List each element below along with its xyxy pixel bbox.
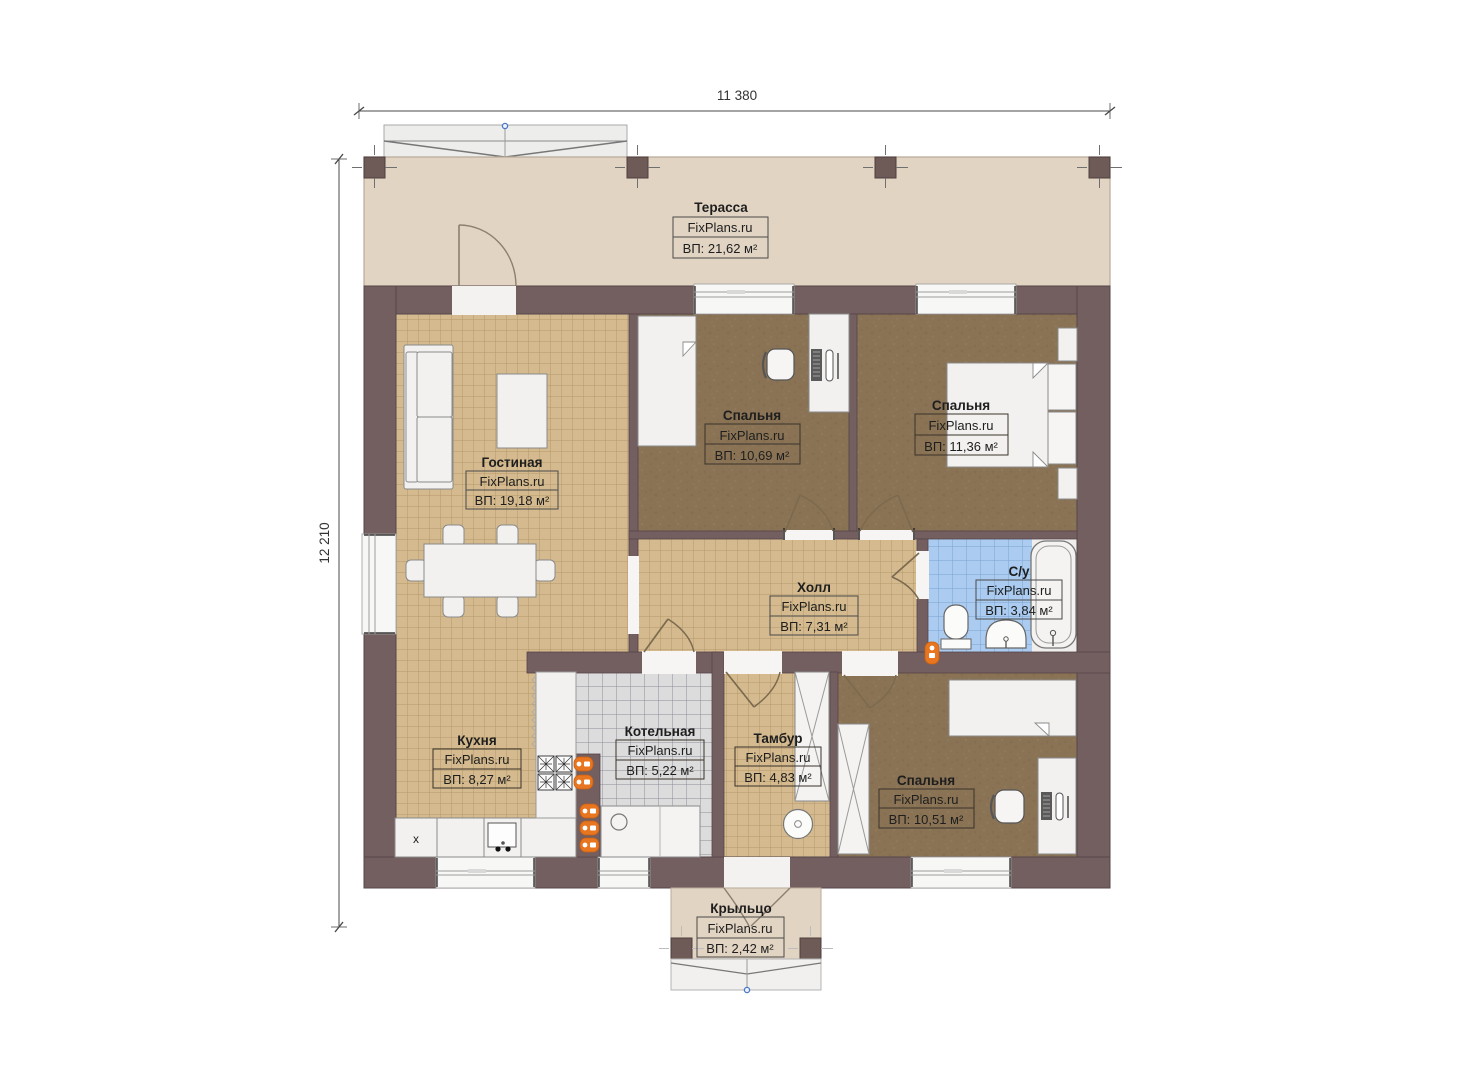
svg-text:ВП: 5,22 м²: ВП: 5,22 м²: [626, 763, 694, 778]
svg-text:FixPlans.ru: FixPlans.ru: [707, 921, 772, 936]
svg-text:FixPlans.ru: FixPlans.ru: [745, 750, 810, 765]
svg-text:11 380: 11 380: [717, 88, 757, 103]
svg-text:FixPlans.ru: FixPlans.ru: [687, 220, 752, 235]
svg-text:ВП: 7,31 м²: ВП: 7,31 м²: [780, 619, 848, 634]
svg-text:ВП: 2,42 м²: ВП: 2,42 м²: [706, 941, 774, 956]
svg-text:Крыльцо: Крыльцо: [710, 901, 771, 916]
svg-text:ВП: 4,83 м²: ВП: 4,83 м²: [744, 770, 812, 785]
svg-text:FixPlans.ru: FixPlans.ru: [627, 743, 692, 758]
svg-text:ВП: 3,84 м²: ВП: 3,84 м²: [985, 603, 1053, 618]
svg-text:12 210: 12 210: [317, 522, 332, 563]
svg-text:Спальня: Спальня: [723, 408, 781, 423]
svg-text:ВП: 21,62 м²: ВП: 21,62 м²: [683, 241, 758, 256]
svg-text:ВП: 8,27 м²: ВП: 8,27 м²: [443, 772, 511, 787]
svg-text:Котельная: Котельная: [625, 724, 696, 739]
svg-text:FixPlans.ru: FixPlans.ru: [444, 752, 509, 767]
svg-text:FixPlans.ru: FixPlans.ru: [781, 599, 846, 614]
svg-text:Кухня: Кухня: [457, 733, 496, 748]
svg-text:Спальня: Спальня: [932, 398, 990, 413]
svg-text:FixPlans.ru: FixPlans.ru: [893, 792, 958, 807]
svg-text:С/у: С/у: [1008, 564, 1030, 579]
svg-text:Тамбур: Тамбур: [754, 731, 803, 746]
svg-text:Терасса: Терасса: [694, 200, 748, 215]
svg-text:x: x: [413, 832, 419, 846]
svg-text:ВП: 10,51 м²: ВП: 10,51 м²: [889, 812, 964, 827]
svg-text:ВП: 11,36 м²: ВП: 11,36 м²: [924, 439, 998, 454]
svg-text:FixPlans.ru: FixPlans.ru: [479, 474, 544, 489]
svg-text:Гостиная: Гостиная: [481, 455, 542, 470]
svg-text:ВП: 10,69 м²: ВП: 10,69 м²: [715, 448, 790, 463]
svg-text:ВП: 19,18 м²: ВП: 19,18 м²: [475, 493, 550, 508]
svg-text:FixPlans.ru: FixPlans.ru: [719, 428, 784, 443]
svg-text:Холл: Холл: [797, 580, 831, 595]
svg-text:FixPlans.ru: FixPlans.ru: [986, 583, 1051, 598]
svg-text:Спальня: Спальня: [897, 773, 955, 788]
svg-text:FixPlans.ru: FixPlans.ru: [928, 418, 993, 433]
